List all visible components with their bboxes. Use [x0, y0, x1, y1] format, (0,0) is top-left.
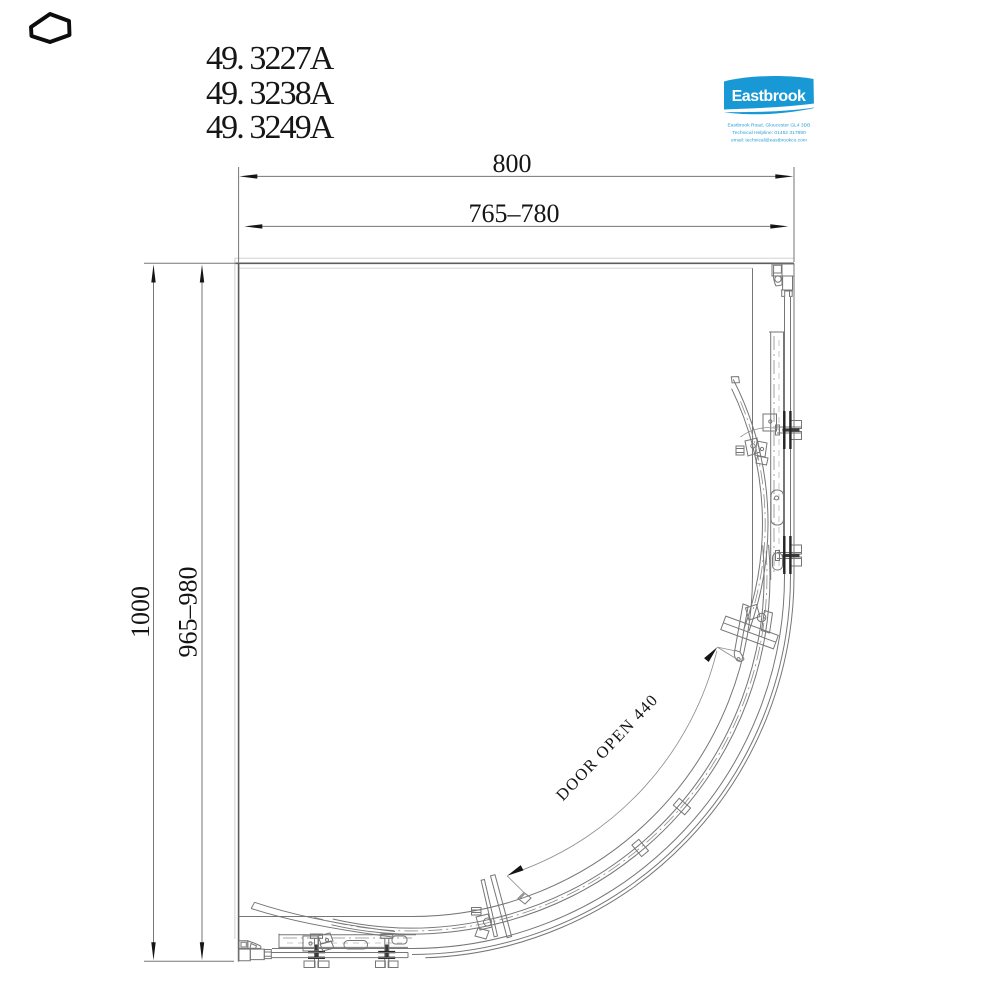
svg-text:Eastbrook: Eastbrook — [732, 88, 806, 105]
svg-text:765–780: 765–780 — [469, 199, 560, 228]
svg-text:965–980: 965–980 — [174, 567, 203, 658]
svg-text:1000: 1000 — [126, 586, 155, 638]
svg-text:Eastbrook Road, Gloucester GL4: Eastbrook Road, Gloucester GL4 3DB — [728, 123, 811, 129]
svg-text:800: 800 — [493, 149, 532, 178]
svg-text:Technical Helpline: 01452 3178: Technical Helpline: 01452 317890 — [732, 130, 806, 136]
svg-text:email: technical@eastbrookco.c: email: technical@eastbrookco.com — [731, 138, 807, 144]
svg-text:DOOR OPEN 440: DOOR OPEN 440 — [552, 690, 662, 804]
